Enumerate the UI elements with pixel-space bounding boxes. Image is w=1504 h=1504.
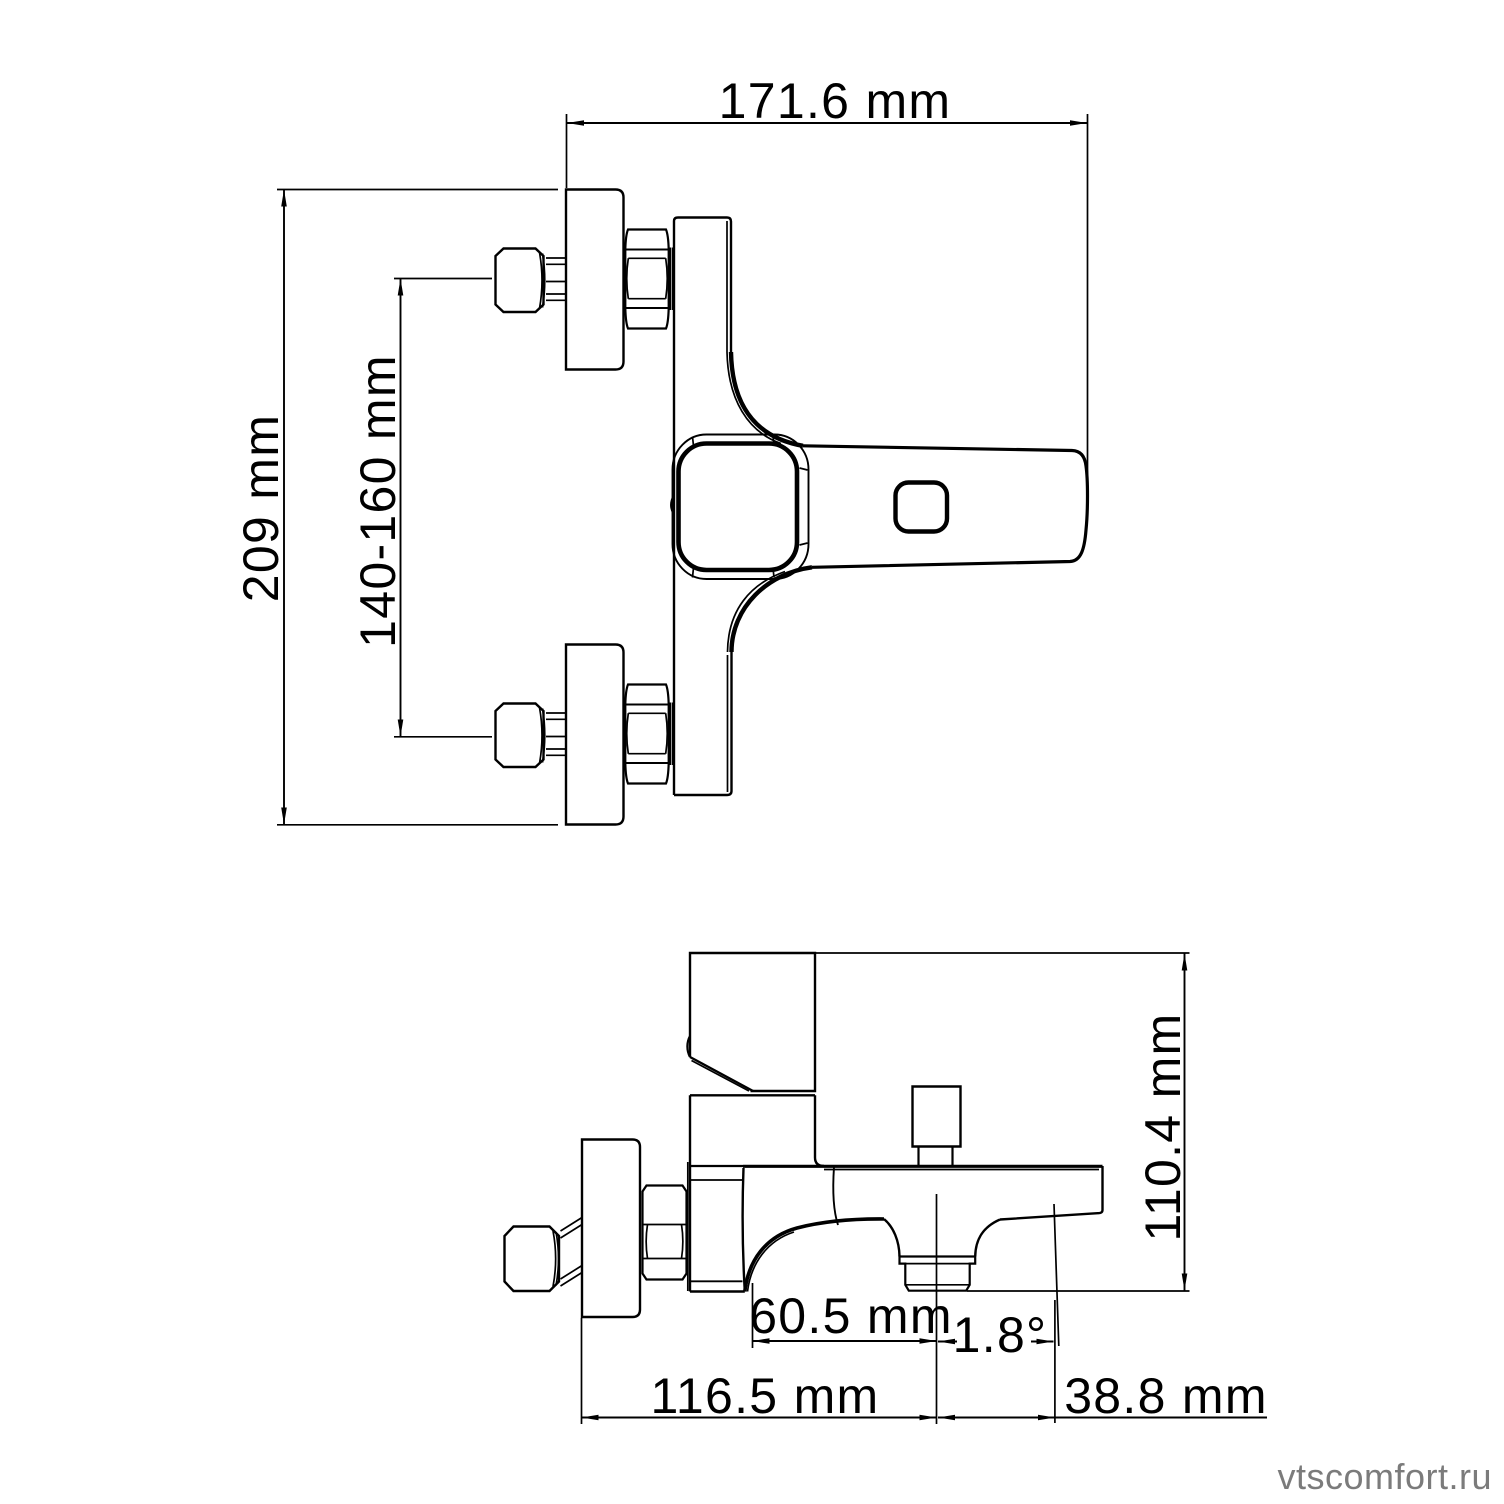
svg-text:1.8°: 1.8° (953, 1307, 1048, 1363)
svg-text:110.4 mm: 110.4 mm (1135, 1012, 1191, 1241)
svg-text:116.5 mm: 116.5 mm (650, 1368, 879, 1424)
svg-text:60.5 mm: 60.5 mm (749, 1288, 953, 1344)
svg-text:38.8 mm: 38.8 mm (1064, 1368, 1268, 1424)
svg-text:140-160 mm: 140-160 mm (350, 354, 406, 648)
svg-text:209 mm: 209 mm (233, 414, 289, 602)
svg-text:171.6 mm: 171.6 mm (719, 73, 952, 129)
svg-text:vtscomfort.ru: vtscomfort.ru (1277, 1456, 1492, 1497)
